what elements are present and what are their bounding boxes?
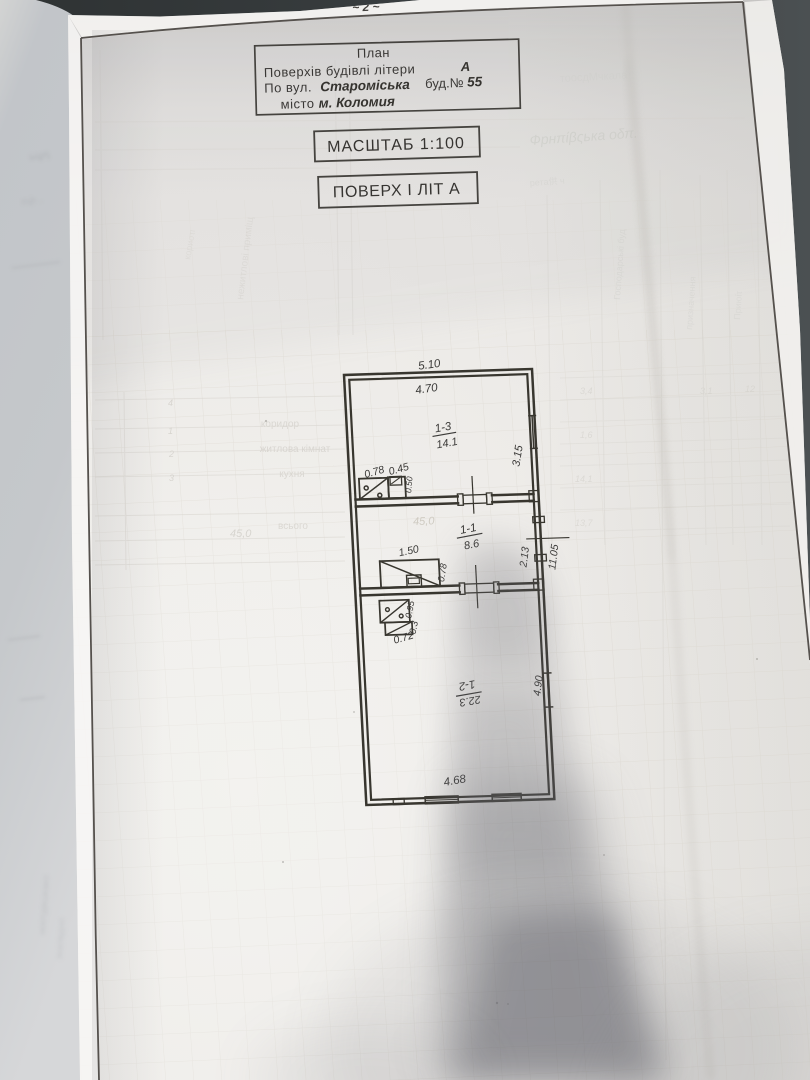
svg-text:14,1: 14,1: [575, 474, 593, 484]
svg-text:місто: місто: [280, 96, 314, 112]
svg-text:житлова кімнат: житлова кімнат: [260, 444, 331, 455]
svg-text:3,1: 3,1: [700, 386, 713, 396]
svg-text:3,4: 3,4: [580, 386, 593, 396]
svg-text:Староміська: Староміська: [320, 77, 410, 94]
svg-text:буд.№: буд.№: [425, 75, 464, 91]
svg-text:45,0: 45,0: [413, 515, 436, 528]
svg-text:45,0: 45,0: [230, 528, 252, 540]
svg-text:По вул.: По вул.: [264, 79, 312, 95]
svg-text:План: План: [357, 45, 390, 61]
svg-text:3: 3: [169, 473, 174, 483]
svg-text:м. Коломия: м. Коломия: [318, 94, 395, 111]
svg-text:55: 55: [467, 74, 483, 89]
svg-text:кухня: кухня: [279, 469, 304, 480]
svg-text:1: 1: [168, 426, 173, 436]
svg-text:1,6: 1,6: [580, 430, 593, 440]
svg-text:А: А: [460, 59, 471, 74]
svg-text:0.50: 0.50: [403, 476, 414, 494]
svg-text:4: 4: [168, 398, 173, 408]
svg-text:Приюίτ: Приюίτ: [732, 290, 744, 320]
svg-text:13,7: 13,7: [575, 518, 594, 528]
svg-text:2: 2: [168, 449, 174, 459]
svg-text:12: 12: [745, 384, 755, 394]
svg-text:всього: всього: [278, 521, 308, 532]
